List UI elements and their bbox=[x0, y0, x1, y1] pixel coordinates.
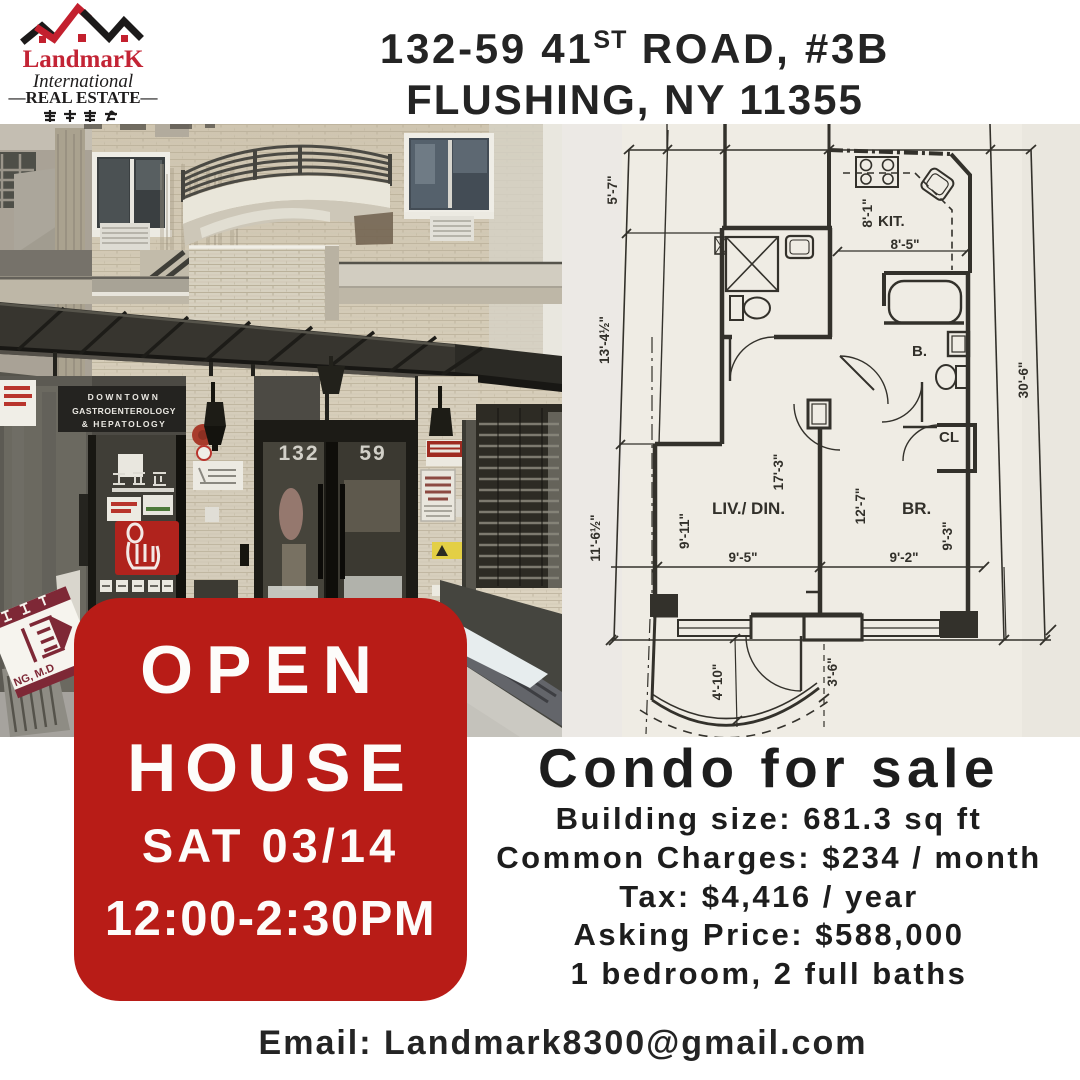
svg-text:KIT.: KIT. bbox=[878, 213, 905, 230]
svg-text:DOWNTOWN: DOWNTOWN bbox=[88, 392, 161, 402]
svg-text:12'-7": 12'-7" bbox=[853, 488, 868, 525]
svg-text:B.: B. bbox=[912, 343, 927, 360]
svg-text:9'-2": 9'-2" bbox=[889, 550, 918, 565]
svg-text:8'-1": 8'-1" bbox=[860, 198, 875, 227]
svg-text:CL: CL bbox=[939, 429, 959, 446]
svg-text:9'-11": 9'-11" bbox=[677, 513, 692, 549]
svg-text:9'-5": 9'-5" bbox=[728, 550, 757, 565]
svg-text:GASTROENTEROLOGY: GASTROENTEROLOGY bbox=[72, 406, 176, 416]
svg-text:59: 59 bbox=[359, 442, 386, 465]
svg-text:9'-3": 9'-3" bbox=[940, 521, 955, 550]
svg-text:LandmarK: LandmarK bbox=[23, 46, 144, 73]
svg-text:13'-4½": 13'-4½" bbox=[597, 316, 612, 364]
svg-text:30'-6": 30'-6" bbox=[1016, 362, 1031, 399]
svg-text:4'-10": 4'-10" bbox=[710, 664, 725, 701]
svg-text:132: 132 bbox=[278, 442, 319, 465]
svg-text:17'-3": 17'-3" bbox=[771, 454, 786, 491]
svg-text:11'-6½": 11'-6½" bbox=[588, 514, 603, 561]
svg-text:5'-7": 5'-7" bbox=[605, 175, 620, 204]
svg-text:BR.: BR. bbox=[902, 499, 931, 518]
svg-text:—REAL ESTATE—: —REAL ESTATE— bbox=[7, 88, 158, 107]
svg-text:LIV./ DIN.: LIV./ DIN. bbox=[712, 499, 785, 518]
svg-text:& HEPATOLOGY: & HEPATOLOGY bbox=[82, 419, 167, 429]
svg-text:8'-5": 8'-5" bbox=[890, 237, 919, 252]
svg-text:3'-6": 3'-6" bbox=[825, 657, 840, 686]
